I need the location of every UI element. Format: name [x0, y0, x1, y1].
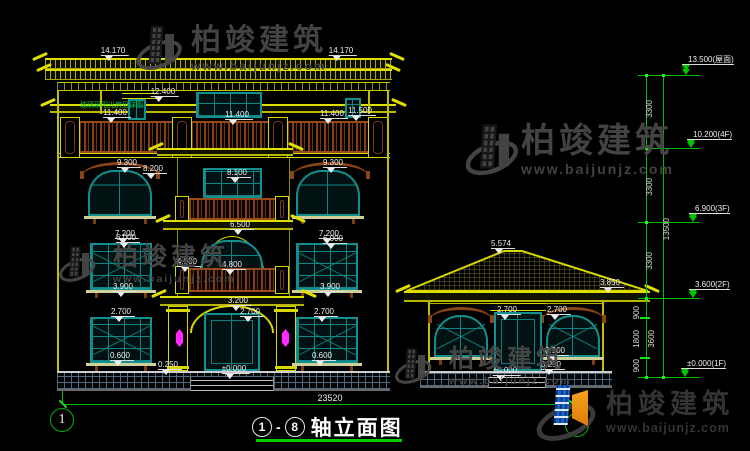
- title-axis-start: 1: [259, 420, 266, 434]
- brand-logo-url: www.baijunjz.com: [606, 421, 734, 435]
- dimension-label: 5.574: [491, 239, 511, 255]
- watermark-logo-icon: [62, 245, 96, 285]
- dimension-label: 8.100: [227, 168, 247, 184]
- grip-dot: [662, 74, 665, 77]
- watermark-brand: 柏竣建筑: [191, 26, 327, 56]
- dimension-label: 3.900: [320, 282, 340, 298]
- window-sill: [84, 216, 156, 219]
- grip-dot: [645, 376, 648, 379]
- dimension-label: 2.700: [547, 305, 567, 321]
- elevation-flag-label: ±0.000(1F): [687, 359, 726, 368]
- title-axis-circle-end: 8: [285, 417, 305, 437]
- brand-logo-text: 柏竣建筑: [606, 391, 734, 418]
- vertical-dimension-label: 13500: [662, 218, 671, 240]
- watermark: 柏竣建筑 www.baijunjz.com: [140, 24, 327, 74]
- main-wall-left-edge: [57, 91, 59, 371]
- dimension-label: 2.700: [314, 307, 334, 323]
- main-wall-right-edge: [387, 91, 389, 371]
- vertical-dimension-label: 3300: [645, 178, 654, 196]
- vertical-dimension-label: 1800: [632, 330, 641, 348]
- grip-dot: [645, 297, 648, 300]
- vertical-dimension-label: 900: [632, 359, 641, 372]
- center-bay-canopy: [157, 148, 293, 156]
- grip-dot: [662, 376, 665, 379]
- balustrade-pier: [368, 117, 388, 158]
- dimension-label: 11.400: [225, 110, 249, 126]
- watermark-url: www.baijunjz.com: [191, 59, 327, 73]
- dimension-label: 11.500: [348, 106, 372, 122]
- title-dash: -: [276, 419, 281, 435]
- vertical-dimension-label: 3300: [645, 252, 654, 270]
- dimension-label: 9.300: [117, 158, 137, 174]
- axis-number: 1: [59, 412, 66, 428]
- watermark: 柏竣建筑 www.baijunjz.com: [62, 240, 236, 290]
- balcony-post: [275, 266, 289, 294]
- dimension-label: 2.700: [111, 307, 131, 323]
- grip-dot: [645, 221, 648, 224]
- vertical-dimension-label: 3300: [645, 100, 654, 118]
- elevation-flag-label: 10.200(4F): [693, 130, 732, 139]
- watermark-logo-icon: [470, 122, 518, 180]
- dimension-label: 11.400: [320, 109, 344, 125]
- dimension-label: 3.850: [600, 278, 620, 294]
- cad-elevation-canvas: 1 柏竣建筑 www.baijunjz.com 柏竣建筑 www.baijunj…: [0, 0, 750, 451]
- title-underline: [256, 439, 402, 442]
- title-text: 轴立面图: [311, 412, 403, 442]
- balustrade-pier: [60, 117, 80, 158]
- axis-extension-line: [62, 391, 63, 405]
- elevation-flag-label: 3.600(2F): [695, 280, 730, 289]
- window-3f-right: [296, 170, 360, 216]
- dimension-label: 0.600: [312, 351, 332, 367]
- watermark-logo-icon: [398, 347, 432, 387]
- balcony-3f-balustrade: [189, 198, 275, 220]
- dimension-label: 2.700: [497, 305, 517, 321]
- dimension-label: 14.170: [329, 46, 353, 62]
- watermark-logo-icon: [140, 24, 182, 74]
- dimension-label: 9.300: [323, 158, 343, 174]
- balcony-post: [275, 196, 289, 222]
- balcony-3f-slab: [163, 220, 293, 230]
- dimension-label: ±0.000: [222, 364, 246, 380]
- level-tick: [640, 317, 650, 319]
- drawing-title: 1 - 8 轴立面图: [252, 412, 403, 442]
- watermark-brand: 柏竣建筑: [449, 347, 572, 372]
- grip-dot: [645, 74, 648, 77]
- watermark: 柏竣建筑 www.baijunjz.com: [470, 124, 674, 177]
- watermark-url: www.baijunjz.com: [521, 161, 674, 177]
- elevation-flag-label: 13.500(屋面): [688, 55, 734, 64]
- watermark-brand: 柏竣建筑: [521, 124, 674, 158]
- dimension-label: 12.400: [151, 87, 175, 103]
- title-axis-end: 8: [291, 420, 298, 434]
- dimension-label: 2.700: [240, 307, 260, 323]
- annex-wall-right: [602, 302, 604, 371]
- elevation-flag-label: 6.900(3F): [695, 204, 730, 213]
- dimension-label: 8.200: [143, 164, 163, 180]
- dimension-label: 0.600: [110, 351, 130, 367]
- balcony-post: [175, 196, 189, 222]
- watermark-brand: 柏竣建筑: [113, 245, 236, 270]
- level-tick: [640, 357, 650, 359]
- vertical-dimension-label: 900: [632, 306, 641, 319]
- dimension-label: 6.000: [323, 234, 343, 250]
- vertical-dimension-label: 3600: [647, 330, 656, 348]
- roof-fascia-rafters: [57, 82, 390, 91]
- watermark-url: www.baijunjz.com: [113, 273, 236, 285]
- title-axis-circle-start: 1: [252, 417, 272, 437]
- dimension-label: 11.400: [103, 108, 127, 124]
- dimension-label: 6.500: [230, 220, 250, 236]
- dimension-label: 23520: [317, 393, 342, 403]
- brand-logo: 柏竣建筑 www.baijunjz.com: [542, 382, 734, 444]
- overall-width-dimension-line: [63, 404, 573, 405]
- brand-logo-icon: [542, 382, 598, 444]
- dimension-label: 0.250: [158, 360, 178, 376]
- axis-bubble-1: 1: [50, 408, 74, 432]
- dimension-label: 14.170: [101, 46, 125, 62]
